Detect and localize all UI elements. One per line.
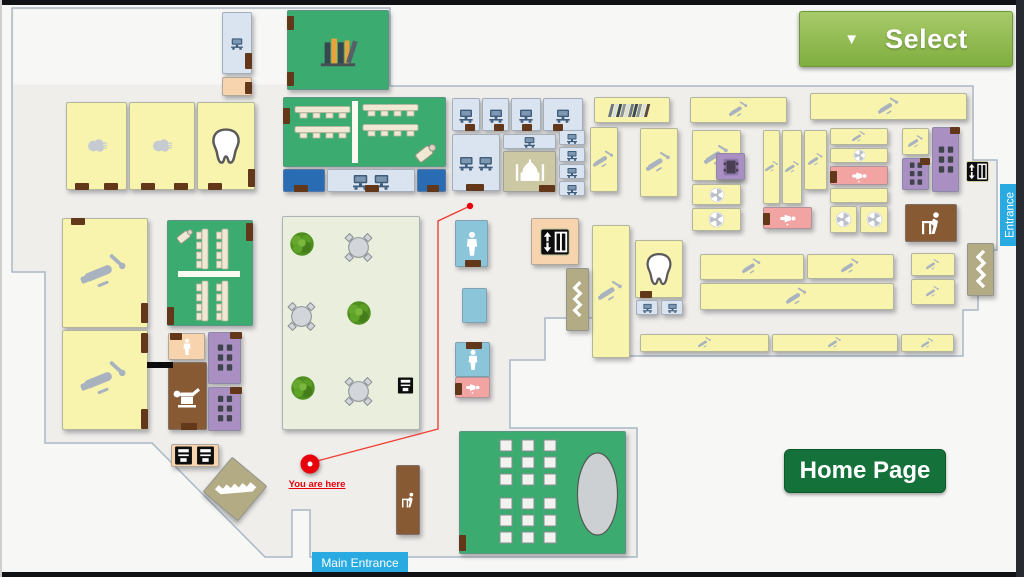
vending-icon: [174, 446, 193, 465]
door: [459, 535, 466, 551]
mens-toilet: [455, 220, 488, 267]
computer-icon: [566, 166, 578, 178]
computer-room: [452, 134, 500, 191]
deskv-icon: [216, 280, 229, 322]
vending-machine: [196, 446, 215, 465]
door: [466, 342, 482, 349]
seatgrid-icon: [496, 495, 558, 545]
chair-icon: [785, 160, 800, 175]
door: [522, 124, 532, 131]
chair-icon: [598, 279, 624, 305]
computer-room: [559, 164, 585, 179]
chair-icon: [593, 149, 615, 171]
desk-row: [294, 126, 351, 139]
dental-room: [810, 93, 967, 120]
dental-room: [640, 334, 769, 352]
door: [640, 291, 652, 298]
persondesk-icon: [398, 489, 418, 511]
door: [427, 185, 439, 192]
door: [763, 213, 770, 225]
door: [830, 171, 837, 183]
door: [950, 127, 960, 134]
patio-table: [344, 377, 373, 406]
chair-icon: [646, 150, 672, 176]
door: [104, 183, 118, 190]
projector: [175, 227, 195, 244]
treatment-room: [129, 102, 195, 190]
door: [920, 158, 930, 165]
dental-room: [62, 330, 148, 430]
home-page-button[interactable]: Home Page: [784, 449, 946, 493]
chair-icon: [908, 134, 924, 150]
chevron-down-icon: ▼: [844, 31, 859, 48]
radiation-icon: [835, 211, 852, 228]
desk-row: [196, 228, 209, 270]
womens-room: [830, 166, 888, 185]
patio-table: [287, 302, 316, 331]
computer-room: [482, 98, 509, 131]
stairsv-icon: [570, 274, 585, 326]
chair-icon: [852, 130, 866, 144]
dental-room: [902, 128, 929, 155]
deskh-icon: [362, 124, 419, 137]
rtable-icon: [344, 233, 373, 262]
chair-icon: [926, 285, 940, 299]
desk-row: [216, 228, 229, 270]
door: [71, 218, 85, 225]
prayer-room: [503, 151, 556, 192]
chair-icon: [808, 152, 824, 168]
meeting-room: [716, 153, 745, 180]
small-room: [417, 169, 446, 192]
stairs: [967, 243, 994, 296]
mens-toilet: [168, 333, 205, 360]
desk-row: [362, 124, 419, 137]
womens-room: [763, 207, 812, 229]
womens-toilet: [455, 377, 490, 398]
tree: [343, 297, 375, 329]
small-room: [222, 77, 252, 96]
blob-icon: [83, 132, 111, 160]
door: [539, 185, 555, 192]
desk-row: [362, 104, 419, 117]
wayfinding-app: You are here ▼ Select Home Page Entrance…: [0, 0, 1024, 577]
small-room: [283, 169, 325, 192]
chair-icon: [786, 286, 808, 308]
computer-room: [636, 300, 658, 315]
seating-block: [496, 438, 558, 486]
select-button[interactable]: ▼ Select: [799, 11, 1013, 67]
computer-room: [559, 130, 585, 145]
door: [167, 307, 174, 325]
vending-machine: [397, 376, 414, 395]
door: [294, 185, 308, 192]
door: [141, 409, 148, 429]
door: [245, 53, 252, 69]
xray-room: [830, 206, 857, 233]
deskh-icon: [294, 126, 351, 139]
window-frame-top: [0, 0, 1024, 5]
dental-room: [763, 130, 780, 204]
dental-room: [804, 130, 827, 190]
dental-room: [911, 253, 955, 276]
select-button-label: Select: [885, 24, 968, 55]
dental-room: [62, 218, 148, 328]
door: [170, 333, 182, 340]
waiting-room: [902, 158, 929, 190]
projector: [413, 141, 439, 163]
door: [466, 184, 484, 191]
desk-row: [216, 280, 229, 322]
steps-icon: [211, 465, 259, 513]
door: [141, 183, 155, 190]
rtable-icon: [287, 302, 316, 331]
treatment-room: [168, 362, 207, 430]
seats23-icon: [216, 394, 234, 424]
vending-icon: [397, 376, 414, 395]
window-frame-left: [0, 0, 2, 577]
computer-icon: [523, 135, 536, 148]
chair-icon: [841, 257, 860, 276]
deskv-icon: [216, 228, 229, 270]
computer-room: [661, 300, 683, 315]
small-room: [462, 288, 487, 323]
computer-icon: [458, 107, 474, 123]
dental-room: [592, 225, 630, 358]
deskv-icon: [196, 228, 209, 270]
wall-connector: [147, 362, 173, 368]
door: [230, 332, 242, 339]
computer-room: [559, 181, 585, 196]
door: [365, 185, 379, 192]
seats23-icon: [937, 134, 955, 186]
desk-row: [196, 280, 209, 322]
door: [181, 423, 197, 430]
vending-machine: [174, 446, 193, 465]
elevator: [966, 161, 989, 182]
chair-icon: [878, 96, 900, 118]
tooth-icon: [640, 250, 678, 288]
door: [246, 223, 253, 241]
radiation-icon: [709, 187, 725, 203]
computer-room: [452, 98, 480, 131]
door: [465, 260, 481, 267]
xray-room: [692, 208, 741, 231]
door: [287, 72, 294, 86]
chair-icon: [78, 353, 131, 406]
reception-desk: [396, 465, 420, 535]
computer-room: [503, 134, 556, 149]
door: [465, 124, 475, 131]
door: [245, 82, 252, 94]
computer-icon: [555, 107, 571, 123]
persondesk-icon: [916, 208, 946, 238]
computer-room: [327, 169, 415, 192]
booksrow-icon: [604, 101, 660, 119]
computer-room: [543, 98, 583, 131]
xray-room: [692, 184, 741, 205]
tree-icon: [286, 228, 318, 260]
door: [455, 383, 462, 395]
computer-room: [511, 98, 541, 131]
door: [248, 169, 255, 187]
door: [208, 183, 222, 190]
dental-room: [197, 102, 255, 190]
main-entrance-label: Main Entrance: [312, 552, 408, 573]
computer-icon: [566, 132, 578, 144]
tooth-icon: [205, 125, 247, 167]
tree-icon: [287, 372, 319, 404]
tree: [287, 372, 319, 404]
door: [141, 303, 148, 323]
computer-icon: [667, 302, 678, 313]
computer-icon: [488, 107, 504, 123]
room: [830, 188, 888, 203]
vending-icon: [196, 446, 215, 465]
reception-office: [905, 204, 957, 242]
dental-room: [901, 334, 954, 352]
you-are-here-label: You are here: [282, 479, 352, 490]
bookshelf-icon: [315, 29, 361, 71]
dental-room: [700, 283, 894, 310]
man-icon: [459, 231, 485, 257]
computer-icon: [566, 183, 578, 195]
chair-icon: [698, 336, 712, 350]
blob-icon: [148, 132, 176, 160]
woman-icon: [851, 168, 867, 184]
radiation-icon: [853, 149, 866, 162]
waiting-room: [208, 332, 241, 384]
chair-icon: [921, 337, 934, 350]
deskh-icon: [294, 106, 351, 119]
door: [174, 183, 188, 190]
desk-row: [294, 106, 351, 119]
tables2-icon: [720, 156, 742, 178]
tree-icon: [343, 297, 375, 329]
dental-room: [590, 127, 618, 192]
stairs: [566, 268, 589, 331]
window-frame-bottom: [0, 572, 1024, 577]
door: [283, 108, 290, 124]
treatment-room: [66, 102, 127, 190]
dental-room: [782, 130, 802, 204]
woman-icon: [465, 380, 480, 395]
deskh-icon: [362, 104, 419, 117]
elevator-icon: [540, 228, 570, 256]
door: [494, 124, 504, 131]
computer2-icon: [458, 154, 494, 171]
dental-room: [830, 128, 888, 145]
computer-icon: [230, 36, 244, 50]
door: [553, 124, 563, 131]
window-frame-right: [1016, 0, 1024, 577]
dental-room: [700, 254, 804, 280]
room-divider: [352, 101, 358, 163]
door: [287, 16, 294, 30]
computer-icon: [642, 302, 653, 313]
computer-icon: [518, 107, 534, 123]
patient-icon: [171, 381, 205, 411]
room-divider: [178, 271, 240, 277]
records-room: [594, 97, 670, 123]
dental-room: [635, 240, 683, 298]
library: [287, 10, 389, 90]
xray-room: [860, 206, 888, 233]
waiting-room: [208, 387, 241, 431]
waiting-room: [932, 127, 959, 192]
dental-room: [807, 254, 894, 279]
chair-icon: [765, 160, 779, 174]
stairsv-icon: [973, 248, 989, 292]
door: [75, 183, 89, 190]
man-icon: [462, 349, 484, 371]
computer-icon: [566, 149, 578, 161]
computer-room: [559, 147, 585, 162]
seats23-icon: [216, 340, 234, 376]
dental-room: [772, 334, 898, 352]
chair-icon: [742, 257, 762, 277]
dental-room: [911, 279, 955, 305]
chair-icon: [729, 100, 749, 120]
dental-room: [640, 128, 678, 197]
mens-toilet: [455, 342, 490, 377]
radiation-icon: [866, 211, 883, 228]
chair-icon: [78, 246, 131, 299]
xray-room: [830, 148, 888, 163]
tree: [286, 228, 318, 260]
dental-room: [690, 97, 787, 123]
projector-icon: [413, 141, 439, 163]
man-icon: [178, 338, 196, 356]
seatgrid-icon: [496, 438, 558, 486]
mosque-icon: [514, 159, 546, 184]
elevator-lobby: [531, 218, 579, 265]
radiation-icon: [708, 211, 725, 228]
chair-icon: [828, 336, 842, 350]
seating-block: [496, 495, 558, 545]
door: [230, 387, 242, 394]
deskv-icon: [196, 280, 209, 322]
woman-icon: [779, 210, 796, 227]
patio-table: [344, 233, 373, 262]
rtable-icon: [344, 377, 373, 406]
oval-icon: [576, 451, 619, 537]
stage-oval: [576, 451, 619, 537]
door: [141, 333, 148, 353]
chair-icon: [926, 258, 940, 272]
projector-icon: [175, 227, 195, 244]
storage-room: [222, 12, 252, 74]
elevator-icon: [966, 161, 989, 182]
